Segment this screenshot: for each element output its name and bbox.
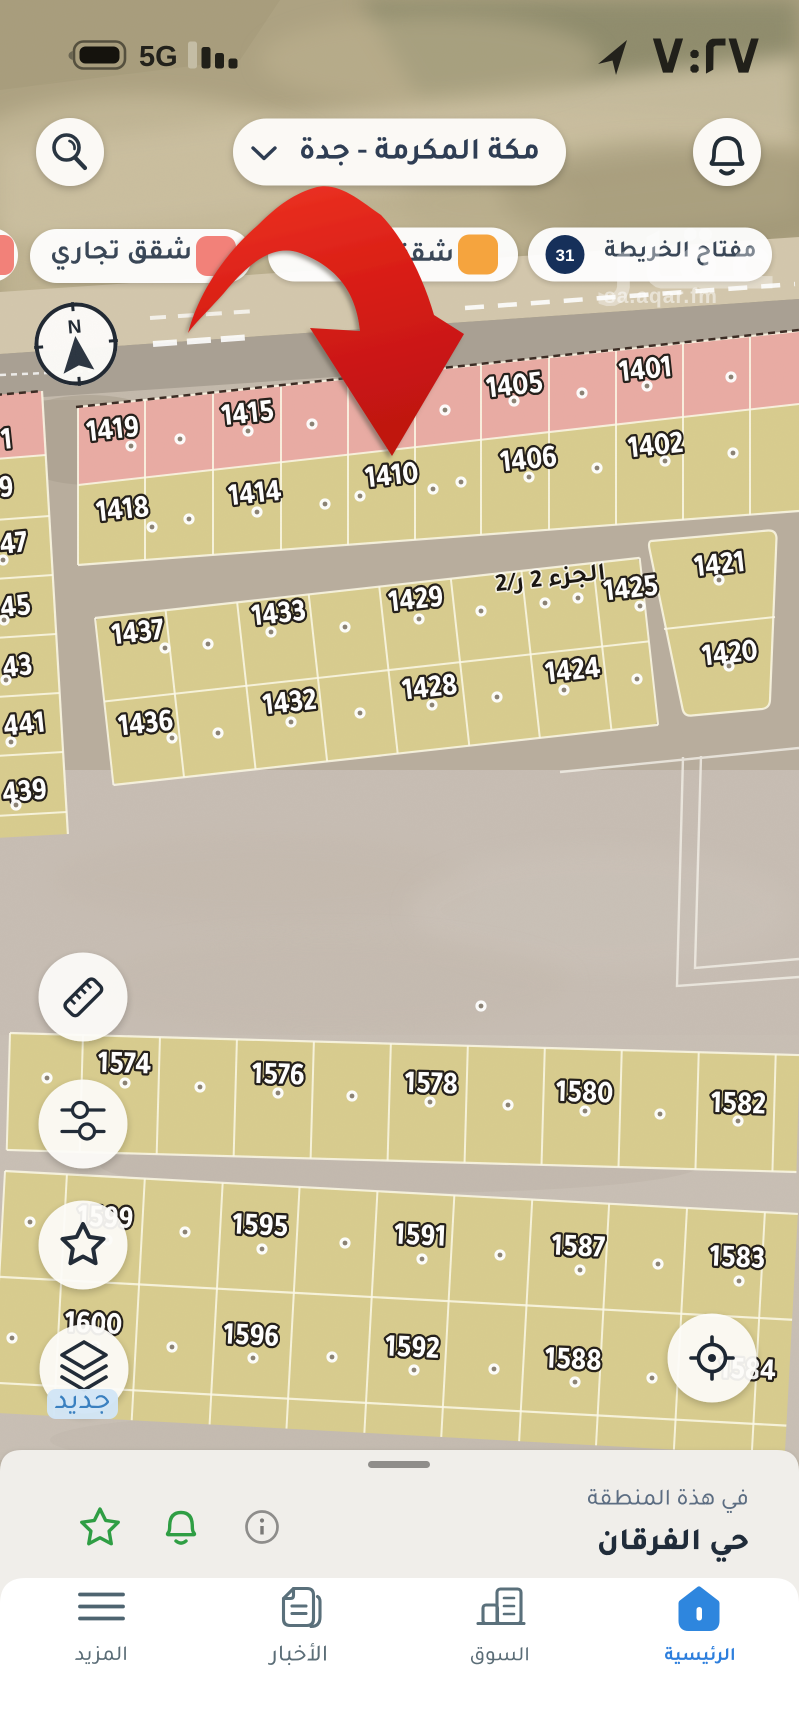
svg-text:sa.aqar.fm: sa.aqar.fm: [604, 285, 718, 308]
svg-text:31: 31: [556, 246, 575, 265]
svg-text:5G: 5G: [139, 41, 178, 73]
